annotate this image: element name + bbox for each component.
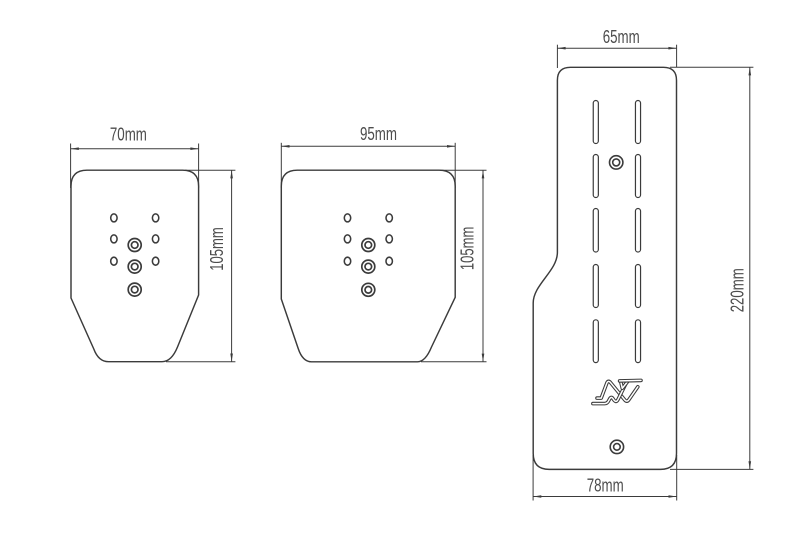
svg-text:70mm: 70mm: [110, 124, 147, 144]
svg-text:220mm: 220mm: [728, 268, 748, 312]
svg-text:105mm: 105mm: [207, 227, 227, 271]
svg-text:105mm: 105mm: [458, 227, 478, 271]
svg-text:65mm: 65mm: [603, 27, 640, 47]
svg-text:78mm: 78mm: [587, 476, 624, 496]
svg-text:95mm: 95mm: [360, 124, 397, 144]
